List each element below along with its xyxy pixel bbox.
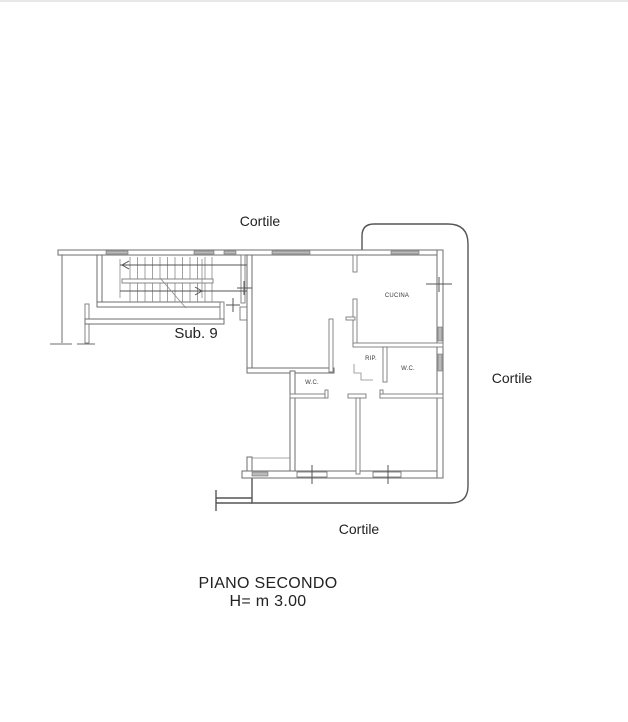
windows	[106, 251, 442, 477]
label-room-kitchen: CUCINA	[385, 293, 409, 299]
opening-marks	[226, 277, 452, 484]
plan-title: PIANO SECONDO	[198, 575, 337, 593]
interior-walls	[290, 255, 443, 474]
label-room-wc-right: W.C.	[401, 366, 415, 372]
staircase	[120, 257, 247, 308]
label-sub-9: Sub. 9	[174, 325, 217, 342]
plan-height-note: H= m 3.00	[230, 593, 307, 611]
label-room-wc-left: W.C.	[305, 380, 319, 386]
floor-plan-page: Cortile Sub. 9 Cortile Cortile CUCINA RI…	[0, 0, 628, 722]
label-cortile-bottom: Cortile	[339, 521, 379, 537]
label-cortile-top: Cortile	[240, 213, 280, 229]
label-cortile-right: Cortile	[492, 370, 532, 386]
label-room-storage: RIP.	[365, 356, 377, 362]
floor-plan-drawing	[0, 2, 628, 722]
